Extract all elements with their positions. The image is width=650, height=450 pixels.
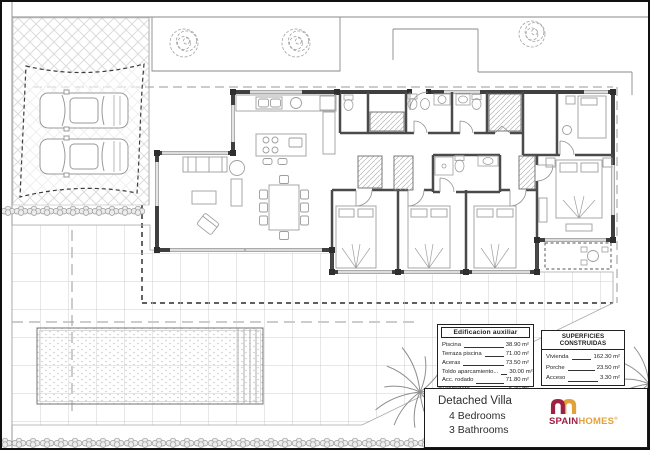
trees <box>170 21 545 57</box>
aux-table: Edificacion auxiliar Piscina38.90 m² Ter… <box>437 324 534 387</box>
aux-table-title: Edificacion auxiliar <box>441 327 530 338</box>
carport-awning-outline <box>20 64 144 197</box>
table-row: Acc. rodado71.80 m² <box>442 376 529 385</box>
driveway <box>13 18 149 205</box>
spainhomes-wordmark: SPAINHOMES® <box>549 416 644 427</box>
title-line-3: 3 Bathrooms <box>449 424 512 436</box>
surfaces-table-title: SUPERFICIES CONSTRUIDAS <box>542 331 624 350</box>
table-row: Terraza piscina71.00 m² <box>442 350 529 359</box>
table-row: Piscina38.90 m² <box>442 341 529 350</box>
car <box>40 90 128 131</box>
floor-plan-sheet: Edificacion auxiliar Piscina38.90 m² Ter… <box>0 0 650 450</box>
surfaces-table: SUPERFICIES CONSTRUIDAS Vivienda162.30 m… <box>541 330 625 386</box>
title-line-1: Detached Villa <box>438 395 512 407</box>
title-block: Detached Villa 4 Bedrooms 3 Bathrooms SP… <box>424 388 648 448</box>
table-row: Aceras73.50 m² <box>442 359 529 368</box>
porch <box>545 243 611 269</box>
table-row: Acceso3.30 m² <box>546 374 620 383</box>
spainhomes-arches-icon <box>550 398 578 415</box>
swimming-pool <box>37 328 263 404</box>
table-row: Vivienda162.30 m² <box>546 353 620 362</box>
project-title: Detached Villa 4 Bedrooms 3 Bathrooms <box>438 395 512 436</box>
table-row: Toldo aparcamiento...30.00 m² <box>442 368 529 377</box>
title-line-2: 4 Bedrooms <box>449 410 512 422</box>
spainhomes-logo: SPAINHOMES® <box>549 398 644 427</box>
table-row: Porche23.50 m² <box>546 364 620 373</box>
house <box>154 89 616 275</box>
car <box>40 136 128 177</box>
